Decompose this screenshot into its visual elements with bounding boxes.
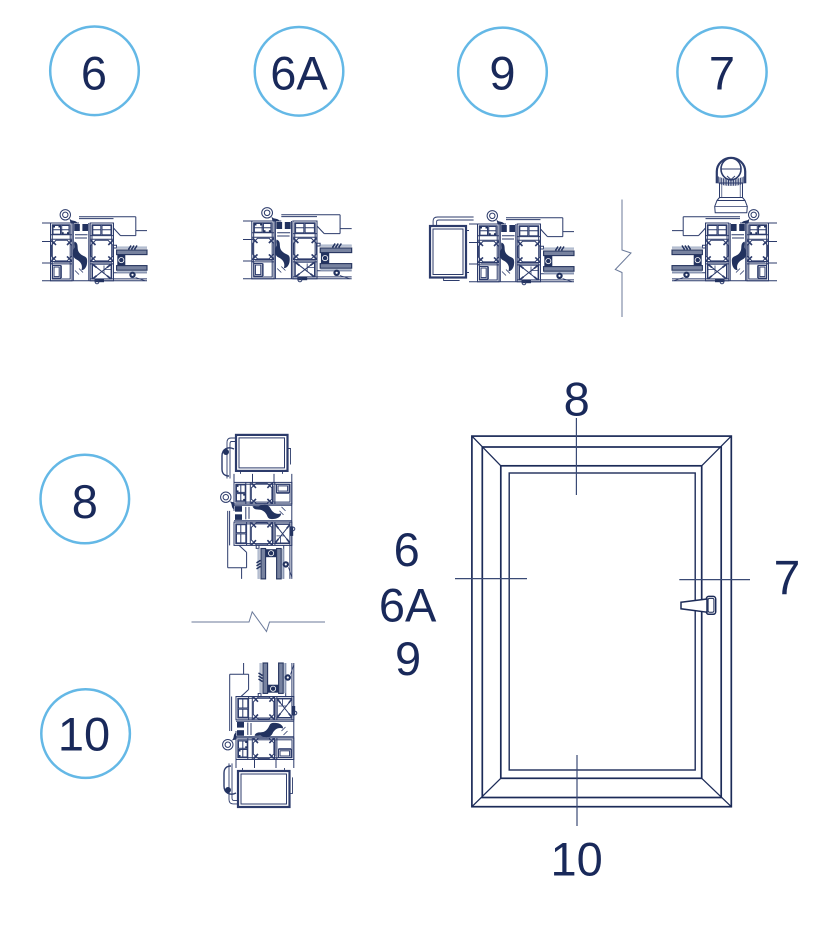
svg-text:6: 6 [81,46,107,99]
svg-text:7: 7 [709,47,735,100]
svg-text:6A: 6A [379,578,437,631]
svg-text:6: 6 [394,523,420,576]
svg-text:7: 7 [774,552,801,605]
svg-text:6A: 6A [270,47,328,100]
svg-text:8: 8 [72,475,98,528]
svg-text:9: 9 [395,632,421,685]
svg-text:8: 8 [564,373,590,426]
svg-text:10: 10 [551,833,603,886]
svg-text:9: 9 [489,47,515,100]
svg-text:10: 10 [58,708,110,761]
